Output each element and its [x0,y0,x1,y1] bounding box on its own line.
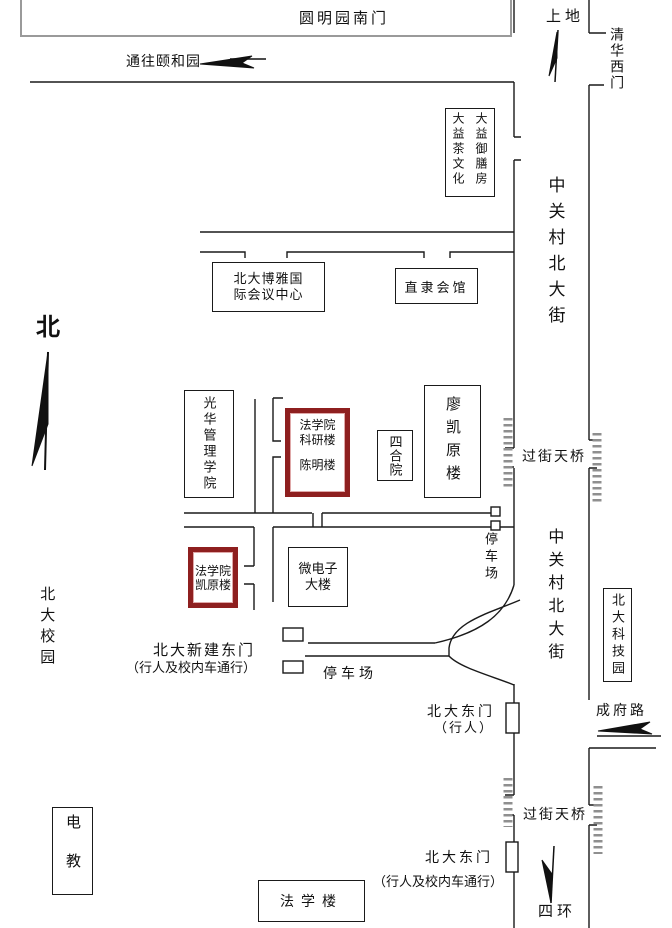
building-yuanmingyuan-south-gate [20,0,512,37]
street-right-edge-upper [589,85,597,700]
law-teaching-label: 法学楼 [280,891,343,911]
building-siheyuan: 四合院 [377,430,413,481]
siheyuan-label: 四合院 [386,435,405,477]
footbridge-upper-label: 过街天桥 [520,448,588,464]
curve-road-inner [449,600,520,685]
building-law-research-chenming: 法学院科研楼 陈明楼 [285,408,350,497]
building-dianjiao: 电教 [52,807,93,895]
chengfu-road-arrow-icon [598,722,652,734]
chengfu-road-label: 成府路 [596,702,647,718]
east-gate-south-marker [506,842,518,872]
pku-campus-label: 北大校园 [38,586,55,670]
boya-center-label: 北大博雅国际会议中心 [233,271,305,303]
street-right-edge-lower [589,736,661,928]
zhongguancun-north-street-lower-label: 中关村北大街 [544,528,562,666]
tsinghua-west-gate-label: 清华西门 [609,27,625,91]
new-east-gate-label: 北大新建东门 [153,642,255,659]
dianjiao-label: 电教 [62,810,83,892]
parking-lot-east-label: 停车场 [480,532,499,583]
fourth-ring-arrow-icon [542,860,552,903]
liao-kaiyuan-label: 廖凯原楼 [442,396,463,488]
law-kaiyuan-label: 法学院凯原楼 [194,564,232,592]
curve-road-outer [435,585,514,643]
new-east-gate-note: （行人及校内车通行） [126,661,256,676]
road-square-marker-1 [491,507,500,516]
dayi-right-column-label: 大益御膳房 [473,112,490,196]
east-gate-south-label: 北大东门 [425,849,493,865]
gate-approach-roads [305,643,449,656]
tsinghua-gate-ticks [589,33,606,85]
road-square-marker-2 [491,521,500,530]
pku-science-park-label: 北大科技园 [608,593,627,678]
street-left-edge-mid [505,448,514,585]
footbridge-lower-label: 过街天桥 [521,806,589,822]
new-east-gate-marker-south [283,661,303,673]
zhongguancun-north-street-upper-label: 中关村北大街 [545,176,565,332]
building-liao-kaiyuan: 廖凯原楼 [424,385,481,498]
yuanmingyuan-south-gate-label: 圆明园南门 [299,10,389,27]
building-boya-center: 北大博雅国际会议中心 [212,262,325,312]
microelectronics-label: 微电子大楼 [296,561,340,593]
building-law-teaching: 法学楼 [258,880,365,922]
east-gate-ped-marker [506,703,519,733]
east-gate-ped-label: 北大东门 [427,703,495,719]
kaiyuan-block-edge [244,527,254,610]
east-gate-south-note: （行人及校内车通行） [373,875,503,890]
campus-map: 圆明园南门 大益茶文化 大益御膳房 北大博雅国际会议中心 直隶会馆 光华管理学院… [0,0,672,928]
building-zhili-guildhall: 直隶会馆 [395,268,478,304]
guanghua-school-label: 光华管理学院 [200,396,219,492]
law-research-label: 法学院科研楼 [298,418,338,448]
building-dayi: 大益茶文化 大益御膳房 [445,108,495,197]
lane-east [273,398,283,513]
fourth-ring-label: 四环 [538,903,576,920]
summer-palace-arrow-icon [200,56,254,68]
parking-lot-south-label: 停车场 [323,665,377,681]
campus-lane-segments [200,252,514,258]
chenming-label: 陈明楼 [298,458,338,473]
to-summer-palace-label: 通往颐和园 [126,53,201,69]
lane-horizontal-upper [184,513,492,527]
building-guanghua-school: 光华管理学院 [184,390,234,498]
street-left-edge-upper [514,82,521,448]
shangdi-label: 上地 [546,8,584,25]
new-east-gate-marker-north [283,628,303,641]
building-microelectronics: 微电子大楼 [288,547,348,607]
east-gate-ped-note: （行人） [434,721,494,736]
zhili-guildhall-label: 直隶会馆 [404,277,468,296]
north-compass-label: 北 [36,314,60,342]
dayi-left-column-label: 大益茶文化 [450,112,467,196]
building-pku-science-park: 北大科技园 [603,588,632,682]
building-law-kaiyuan: 法学院凯原楼 [188,547,238,608]
